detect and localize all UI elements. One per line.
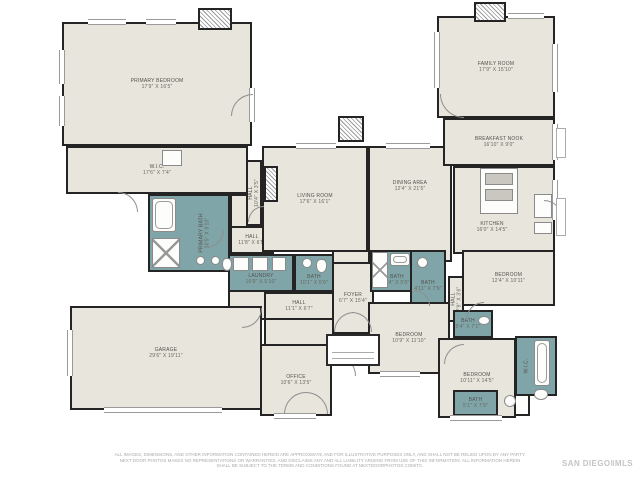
bathtub-fixture	[152, 198, 176, 232]
room-label: HALL7'9" X 3'6"	[450, 287, 462, 312]
room-bath-center: BATH10'1" X 5'0"	[294, 254, 334, 292]
room-label: FAMILY ROOM17'9" X 15'10"	[478, 61, 514, 73]
sink-fixture	[302, 258, 312, 268]
room-label: FOYER6'7" X 15'4"	[339, 292, 367, 304]
window	[88, 19, 126, 25]
stoop	[556, 198, 566, 236]
window	[508, 13, 544, 19]
porch-step	[332, 358, 374, 359]
washer-fixture	[233, 257, 249, 271]
room-label: BATH7'4" X 5'0"	[385, 274, 410, 286]
room-bedroom-2: BEDROOM12'4" X 10'11"	[462, 250, 555, 306]
sink-fixture	[504, 395, 516, 407]
room-label: BREAKFAST NOOK16'10" X 9'0"	[475, 136, 523, 148]
door-swing	[118, 192, 138, 212]
stoop	[556, 128, 566, 158]
bathtub-fixture	[534, 340, 550, 386]
room-label: BEDROOM10'9" X 11'10"	[392, 332, 425, 344]
closet-fixture	[162, 150, 182, 166]
chimney	[338, 116, 364, 142]
toilet-fixture	[534, 389, 548, 400]
room-label: PRIMARY BEDROOM17'9" X 16'5"	[131, 78, 184, 90]
window	[380, 371, 420, 377]
room-label: LAUNDRY10'9" X 5'10"	[246, 273, 277, 285]
toilet-fixture	[222, 258, 232, 271]
porch-step	[332, 352, 374, 353]
fireplace	[198, 8, 232, 30]
shower-fixture	[372, 252, 388, 288]
window	[434, 32, 440, 88]
room-label: LIVING ROOM17'6" X 16'1"	[297, 193, 333, 205]
disclaimer-line: ALL IMAGES, DIMENSIONS, AND OTHER INFORM…	[95, 452, 545, 458]
room-label: GARAGE29'6" X 19'11"	[149, 347, 182, 359]
room-primary-bedroom: PRIMARY BEDROOM17'9" X 16'5"	[62, 22, 252, 146]
room-bath-5: BATH5'1" X 7'9"	[453, 390, 498, 416]
room-garage: GARAGE29'6" X 19'11"	[70, 306, 262, 410]
room-label: BATH10'1" X 5'0"	[300, 274, 328, 286]
range-fixture	[485, 173, 513, 185]
floor-patch	[264, 318, 334, 346]
dryer-fixture	[252, 257, 268, 271]
shower-fixture	[152, 238, 180, 268]
fireplace	[264, 166, 278, 202]
sink-fixture	[211, 256, 220, 265]
fireplace	[474, 2, 506, 22]
room-label: DINING AREA12'4" X 21'5"	[393, 180, 427, 192]
bathtub-fixture	[390, 253, 410, 266]
room-label: W.I.C.	[523, 359, 529, 374]
disclaimer-line: SHALL BE SUBJECT TO THE TERMS AND CONDIT…	[95, 463, 545, 469]
floor-plan: PRIMARY BEDROOM17'9" X 16'5" W.I.C.17'6"…	[0, 0, 640, 480]
room-wic: W.I.C.17'6" X 7'4"	[66, 146, 248, 194]
room-dining-area: DINING AREA12'4" X 21'5"	[368, 146, 452, 262]
room-label: BEDROOM10'11" X 14'5"	[460, 372, 493, 384]
laundry-sink-fixture	[272, 257, 286, 271]
oven-fixture	[534, 222, 552, 234]
window	[450, 415, 502, 421]
sdmls-logo: SAN DIEGO‖MLS	[562, 459, 633, 468]
garage-door	[104, 407, 222, 413]
room-breakfast-nook: BREAKFAST NOOK16'10" X 9'0"	[443, 118, 555, 166]
room-label: HALL11'1" X 6'7"	[285, 300, 313, 312]
window	[296, 143, 336, 149]
sink-fixture	[196, 256, 205, 265]
room-label: HALL10'4" X 3'5"	[248, 179, 260, 207]
room-hall-lower: HALL11'1" X 6'7"	[264, 292, 334, 320]
window	[146, 19, 176, 25]
window	[552, 44, 558, 92]
toilet-fixture	[316, 259, 327, 273]
window	[59, 96, 65, 126]
room-label: BATH5'1" X 7'9"	[463, 397, 488, 409]
sink-fixture	[417, 257, 428, 268]
room-label: BEDROOM12'4" X 10'11"	[492, 272, 525, 284]
window	[386, 143, 430, 149]
island-sink-fixture	[485, 189, 513, 201]
room-label: KITCHEN16'0" X 14'5"	[477, 221, 508, 233]
disclaimer-text: ALL IMAGES, DIMENSIONS, AND OTHER INFORM…	[95, 452, 545, 469]
window	[59, 50, 65, 84]
window	[67, 330, 73, 376]
room-label: OFFICE10'6" X 13'5"	[281, 374, 312, 386]
front-porch	[326, 334, 380, 366]
